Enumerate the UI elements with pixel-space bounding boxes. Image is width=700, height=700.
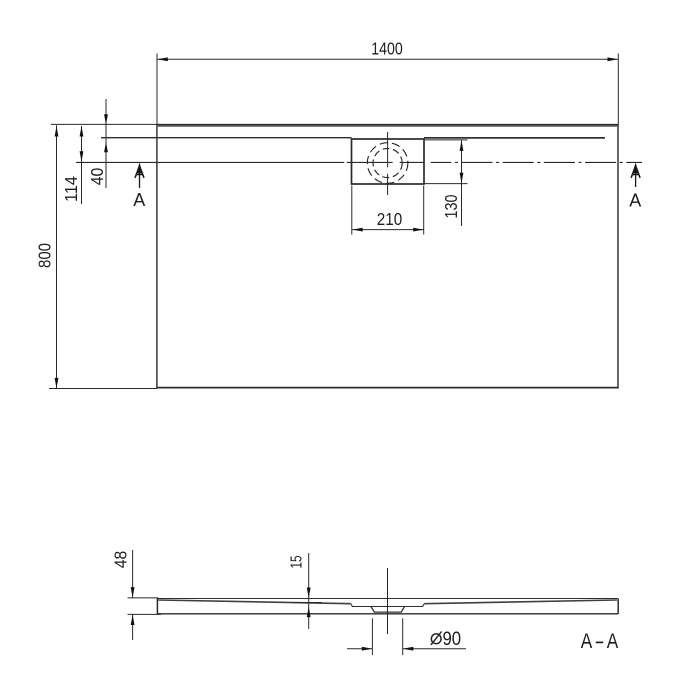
svg-text:48: 48 [111, 551, 131, 569]
svg-text:1400: 1400 [371, 38, 403, 58]
svg-text:A: A [629, 191, 641, 211]
svg-text:114: 114 [61, 176, 81, 202]
svg-text:800: 800 [35, 243, 55, 268]
svg-text:A: A [133, 190, 145, 210]
svg-text:90: 90 [443, 629, 462, 650]
svg-text:15: 15 [289, 556, 306, 569]
svg-text:210: 210 [377, 209, 403, 229]
svg-text:A: A [607, 630, 619, 653]
svg-text:A: A [581, 630, 593, 653]
svg-text:40: 40 [87, 168, 107, 186]
svg-text:130: 130 [441, 194, 461, 218]
